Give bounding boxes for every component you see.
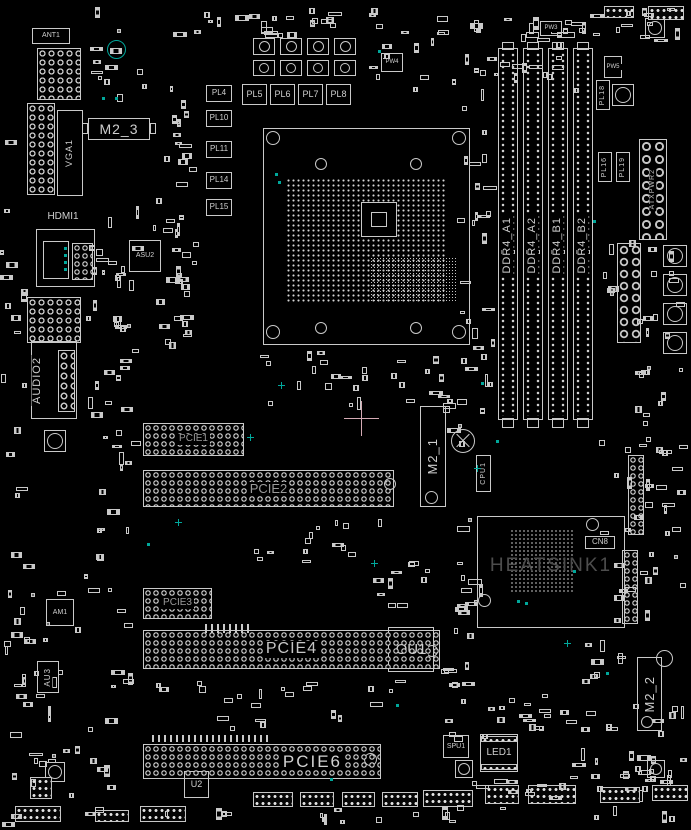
passive-component	[93, 300, 97, 311]
passive-component	[653, 567, 658, 575]
slot-tab	[150, 123, 156, 134]
passive-component	[681, 706, 684, 719]
passive-component	[332, 543, 344, 547]
passive-component	[397, 603, 408, 608]
pin-header	[140, 806, 186, 822]
passive-component	[465, 367, 478, 371]
asu2-chip: ASU2	[129, 240, 161, 272]
passive-component	[88, 727, 93, 732]
speaker-header: SPU1	[443, 735, 469, 758]
passive-component	[461, 699, 466, 704]
passive-component	[52, 754, 56, 758]
passive-component	[285, 692, 294, 697]
passive-component	[669, 251, 674, 262]
passive-component	[257, 557, 263, 561]
passive-component	[105, 718, 118, 724]
passive-component	[235, 15, 249, 21]
passive-component	[29, 753, 43, 756]
teal-cross-mark	[474, 468, 481, 469]
passive-component	[172, 248, 181, 252]
passive-component	[99, 489, 106, 495]
passive-component	[537, 38, 550, 42]
passive-component	[449, 820, 456, 823]
pcie-slot-2: PCIE2	[143, 470, 394, 507]
passive-component	[376, 817, 382, 823]
atx-power-connector: ATXPWR2	[639, 139, 667, 240]
passive-component	[433, 356, 439, 364]
passive-component	[57, 591, 66, 596]
inductor-body	[44, 430, 66, 452]
passive-component	[559, 783, 566, 790]
passive-component	[654, 39, 668, 42]
passive-component	[14, 618, 21, 625]
passive-component	[88, 397, 93, 409]
test-point	[593, 220, 596, 223]
passive-component	[116, 316, 121, 328]
passive-component	[482, 233, 487, 244]
passive-component	[669, 271, 674, 276]
teal-cross-mark	[175, 522, 182, 523]
passive-component	[637, 755, 651, 761]
passive-component	[465, 54, 469, 65]
passive-component	[129, 280, 134, 291]
passive-component	[123, 679, 134, 684]
inductor-pl16: PL16	[598, 152, 612, 182]
passive-component	[473, 346, 484, 350]
passive-component	[370, 702, 383, 707]
passive-component	[467, 633, 474, 639]
passive-component	[6, 262, 18, 268]
passive-component	[561, 32, 575, 38]
passive-component	[459, 441, 465, 447]
pcie-slot-4: PCIE4	[143, 630, 440, 669]
test-point	[147, 543, 150, 546]
passive-component	[491, 339, 495, 347]
passive-component	[644, 13, 654, 17]
inductor-body	[307, 38, 329, 55]
passive-component	[259, 689, 262, 699]
test-point	[378, 50, 381, 53]
hdmi-label: HDMI1	[40, 211, 86, 224]
passive-component	[447, 428, 461, 433]
passive-component	[483, 186, 497, 190]
passive-component	[399, 382, 405, 388]
passive-component	[173, 32, 187, 37]
passive-component	[581, 727, 590, 732]
passive-component	[413, 87, 418, 92]
passive-component	[572, 763, 586, 767]
inductor-coil	[47, 433, 63, 449]
passive-component	[524, 703, 531, 706]
passive-component	[172, 115, 177, 124]
passive-component	[391, 373, 397, 379]
passive-component	[618, 653, 623, 664]
passive-component	[260, 355, 269, 358]
passive-component	[461, 588, 472, 593]
passive-component	[309, 532, 313, 539]
test-point	[115, 97, 118, 100]
passive-component	[457, 526, 470, 532]
passive-component	[312, 366, 316, 374]
passive-component	[22, 383, 27, 388]
passive-component	[634, 515, 643, 520]
passive-component	[609, 244, 614, 255]
inductor-pl10: PL10	[206, 110, 232, 127]
passive-component	[627, 477, 632, 489]
passive-component	[303, 549, 308, 554]
passive-component	[287, 32, 297, 38]
passive-component	[93, 60, 101, 64]
passive-component	[10, 732, 22, 738]
passive-component	[194, 30, 201, 34]
passive-component	[11, 552, 22, 558]
inductor-body	[334, 38, 356, 55]
inductor-coil	[259, 41, 270, 52]
passive-component	[5, 646, 8, 655]
passive-component	[142, 84, 147, 89]
passive-component	[623, 771, 629, 779]
m2-slot-3: M2_3	[88, 118, 150, 140]
passive-component	[468, 518, 472, 522]
passive-component	[353, 385, 359, 391]
au3-component: AU3	[37, 661, 59, 693]
passive-component	[389, 689, 393, 693]
passive-component	[597, 786, 603, 792]
passive-component	[542, 694, 548, 698]
test-point	[102, 97, 105, 100]
passive-component	[582, 679, 590, 684]
passive-component	[230, 726, 235, 731]
passive-component	[680, 758, 687, 762]
passive-component	[408, 562, 415, 567]
passive-component	[108, 217, 112, 228]
passive-component	[635, 406, 642, 413]
test-point	[496, 440, 499, 443]
inductor-coil	[286, 41, 297, 52]
passive-component	[661, 392, 666, 401]
heatsink-label: HEATSINK1	[479, 554, 623, 578]
passive-component	[523, 719, 536, 722]
passive-component	[309, 8, 315, 14]
passive-component	[265, 33, 278, 38]
passive-component	[462, 682, 475, 686]
passive-component	[395, 680, 406, 683]
passive-component	[420, 75, 429, 80]
inductor-coil	[667, 306, 683, 322]
passive-component	[108, 588, 112, 592]
passive-component	[166, 219, 175, 223]
passive-component	[174, 316, 183, 321]
passive-component	[480, 70, 486, 76]
passive-component	[368, 686, 374, 692]
teal-cross-mark	[371, 563, 378, 564]
passive-component	[12, 773, 17, 780]
passive-component	[5, 303, 11, 309]
passive-component	[249, 14, 260, 19]
passive-component	[303, 686, 312, 691]
passive-component	[641, 370, 650, 375]
teal-cross-mark	[278, 385, 285, 386]
passive-component	[509, 698, 515, 703]
passive-component	[662, 450, 668, 456]
passive-component	[488, 382, 493, 387]
passive-component	[132, 349, 139, 353]
passive-component	[442, 806, 448, 820]
passive-component	[624, 528, 631, 532]
inductor-pl19: PL19	[616, 152, 630, 182]
passive-component	[616, 27, 620, 33]
passive-component	[178, 159, 188, 165]
passive-component	[204, 12, 210, 18]
passive-component	[462, 106, 467, 111]
passive-component	[23, 702, 33, 707]
passive-component	[481, 354, 487, 360]
passive-component	[472, 328, 478, 339]
passive-component	[425, 569, 430, 573]
test-point	[606, 672, 609, 675]
passive-component	[508, 790, 519, 794]
passive-component	[331, 710, 336, 719]
passive-component	[579, 28, 585, 33]
passive-component	[599, 440, 605, 446]
passive-component	[529, 724, 536, 731]
passive-component	[640, 571, 648, 575]
passive-component	[260, 722, 266, 728]
passive-component	[165, 811, 168, 817]
passive-component	[310, 20, 315, 27]
passive-component	[594, 815, 599, 820]
passive-component	[216, 808, 222, 820]
passive-component	[95, 807, 104, 813]
passive-component	[175, 229, 178, 238]
test-point	[275, 173, 278, 176]
passive-component	[11, 632, 23, 638]
passive-component	[24, 639, 36, 644]
passive-component	[182, 321, 188, 327]
passive-component	[116, 375, 121, 381]
passive-component	[425, 369, 430, 374]
teal-cross-mark	[247, 437, 254, 438]
io-connector	[27, 103, 55, 195]
passive-component	[124, 623, 133, 628]
io-connector	[37, 48, 81, 100]
passive-component	[88, 588, 100, 593]
passive-component	[268, 401, 273, 406]
passive-component	[105, 401, 112, 405]
passive-component	[193, 242, 199, 247]
passive-component	[638, 771, 642, 775]
passive-component	[111, 670, 125, 675]
passive-component	[570, 776, 578, 779]
passive-component	[8, 590, 12, 598]
passive-component	[480, 408, 485, 414]
passive-component	[85, 812, 96, 816]
passive-component	[445, 719, 453, 723]
passive-component	[669, 278, 679, 283]
inductor-pl8: PL8	[326, 84, 351, 105]
passive-component	[369, 66, 378, 69]
passive-component	[369, 13, 376, 17]
passive-component	[665, 531, 670, 536]
passive-component	[591, 659, 604, 665]
pcie-slot-6: PCIE6	[143, 744, 381, 779]
passive-component	[136, 206, 139, 219]
passive-component	[401, 31, 409, 34]
passive-component	[626, 11, 631, 16]
passive-component	[110, 48, 122, 54]
passive-component	[438, 395, 450, 398]
passive-component	[208, 20, 213, 23]
passive-component	[11, 814, 22, 819]
passive-component	[478, 215, 490, 218]
pin-header	[652, 785, 688, 801]
passive-component	[461, 358, 467, 364]
passive-component	[16, 694, 27, 699]
passive-component	[222, 811, 227, 817]
inductor-coil	[259, 63, 269, 73]
passive-component	[662, 811, 667, 823]
inductor-pl14: PL14	[206, 172, 232, 189]
test-point	[481, 382, 484, 385]
passive-component	[672, 467, 683, 471]
passive-component	[472, 220, 475, 226]
pcie-slot-1: PCIE1	[143, 423, 244, 456]
passive-component	[629, 240, 636, 247]
inductor-body	[253, 60, 275, 76]
passive-component	[461, 575, 465, 581]
passive-component	[156, 198, 162, 204]
passive-component	[500, 807, 506, 810]
passive-component	[487, 57, 497, 61]
passive-component	[126, 527, 129, 534]
passive-component	[454, 628, 458, 634]
passive-component	[107, 509, 120, 515]
passive-component	[639, 790, 643, 802]
passive-component	[121, 407, 133, 412]
passive-component	[330, 23, 336, 28]
passive-component	[185, 330, 192, 335]
passive-component	[482, 154, 487, 163]
passive-component	[621, 24, 633, 27]
inductor-coil	[340, 41, 351, 52]
passive-component	[591, 774, 600, 779]
passive-component	[184, 111, 189, 118]
passive-component	[378, 519, 382, 527]
passive-component	[566, 720, 577, 724]
passive-component	[431, 38, 434, 46]
passive-component	[317, 351, 325, 355]
io-connector	[628, 455, 644, 535]
dimm-slot-a2-label: DDR4_A2	[522, 180, 544, 310]
passive-component	[39, 761, 47, 767]
passive-component	[16, 487, 28, 491]
inductor-body	[663, 245, 687, 267]
passive-component	[0, 250, 4, 255]
passive-component	[421, 577, 427, 583]
passive-component	[119, 452, 124, 465]
passive-component	[406, 399, 415, 403]
test-point	[396, 704, 399, 707]
passive-component	[651, 756, 656, 764]
passive-component	[90, 758, 97, 764]
inductor-coil	[458, 763, 470, 775]
passive-component	[653, 314, 658, 321]
passive-component	[120, 366, 130, 370]
cpu-socket-pad-field	[370, 257, 458, 302]
passive-component	[494, 779, 508, 784]
passive-component	[457, 399, 467, 405]
passive-component	[302, 560, 311, 563]
passive-component	[457, 805, 464, 811]
passive-component	[266, 361, 271, 366]
passive-component	[679, 368, 683, 372]
passive-component	[643, 413, 650, 417]
passive-component	[639, 444, 647, 447]
passive-component	[104, 370, 115, 375]
passive-component	[675, 28, 680, 40]
cpu-fan-header: CPU1	[476, 455, 491, 492]
passive-component	[11, 315, 21, 321]
io-connector	[617, 243, 641, 343]
passive-component	[377, 593, 385, 596]
passive-component	[105, 65, 118, 70]
passive-component	[15, 493, 20, 498]
passive-component	[586, 711, 596, 716]
passive-component	[497, 717, 505, 723]
passive-component	[649, 552, 654, 557]
pcie-slot-3: PCIE3	[143, 588, 212, 619]
passive-component	[97, 528, 105, 531]
passive-component	[278, 33, 283, 38]
passive-component	[104, 79, 110, 85]
passive-component	[84, 574, 88, 579]
passive-component	[519, 714, 532, 718]
passive-component	[474, 68, 479, 73]
inductor-body	[612, 84, 634, 106]
passive-component	[306, 682, 318, 686]
inductor-pl4: PL4	[206, 85, 232, 102]
test-point	[64, 247, 67, 250]
passive-component	[544, 714, 551, 718]
passive-component	[674, 555, 678, 559]
passive-component	[120, 359, 132, 363]
cn8-connector: CN8	[585, 536, 615, 549]
passive-component	[2, 822, 15, 827]
passive-component	[499, 706, 505, 710]
passive-component	[117, 29, 121, 33]
passive-component	[115, 275, 121, 281]
passive-component	[625, 447, 631, 453]
io-connector	[27, 297, 81, 343]
passive-component	[343, 523, 349, 529]
passive-component	[281, 687, 285, 691]
passive-component	[458, 610, 470, 615]
passive-component	[533, 17, 539, 30]
passive-component	[469, 162, 481, 166]
passive-component	[320, 360, 328, 365]
passive-component	[658, 731, 664, 737]
passive-component	[98, 76, 102, 80]
dimm-slot-b1-label: DDR4_B1	[547, 180, 569, 310]
test-point	[64, 254, 67, 257]
pin-row	[152, 735, 270, 742]
passive-component	[457, 604, 468, 607]
passive-component	[560, 710, 569, 715]
passive-component	[614, 473, 619, 478]
passive-component	[137, 69, 143, 75]
passive-component	[677, 490, 686, 495]
passive-component	[669, 712, 676, 719]
